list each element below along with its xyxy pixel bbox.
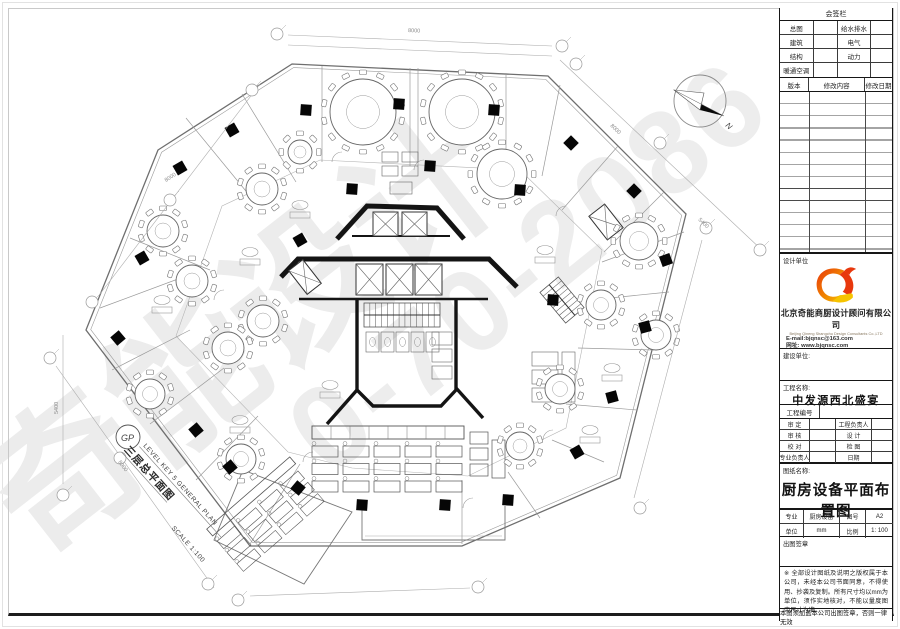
plan-shape (648, 260, 656, 267)
plan-shape (138, 220, 144, 228)
plan-shape (532, 352, 558, 366)
plan-shape (160, 252, 167, 257)
project-name-section: 工程名称: 中发源西北盛宴 (780, 381, 892, 405)
plan-shape (167, 270, 173, 278)
plan-shape (280, 178, 286, 186)
plan-shape (566, 404, 637, 410)
plan-shape (482, 143, 490, 150)
dining-table (536, 365, 584, 413)
plan-shape (498, 117, 504, 125)
plan-shape (237, 549, 261, 572)
seal-label: 出图签章 (780, 537, 892, 548)
plan-shape (258, 530, 282, 553)
plan-shape (636, 265, 643, 270)
plan-shape (258, 448, 264, 456)
plan-shape (260, 296, 267, 301)
plan-shape (217, 462, 223, 470)
plan-shape (237, 178, 243, 186)
personnel-label: 设 计 (836, 430, 872, 441)
plan-shape (618, 294, 624, 302)
plan-shape (259, 210, 266, 215)
plan-shape (526, 154, 533, 162)
plan-shape (436, 459, 440, 463)
plan-shape (504, 425, 512, 433)
company-logo-icon (780, 263, 892, 307)
column-marker (605, 390, 618, 403)
dim-label: 5400 (54, 402, 60, 414)
plan-shape (648, 260, 656, 267)
plan-shape (569, 368, 577, 376)
plan-shape (557, 409, 564, 414)
plan-shape (362, 506, 505, 540)
build-unit-label: 建设单位: (780, 349, 892, 360)
plan-shape (489, 133, 497, 141)
signature-label: 给水排水 (838, 21, 870, 35)
plan-shape (189, 256, 196, 261)
plan-shape (557, 409, 564, 414)
plan-shape (259, 164, 266, 169)
plan-shape (248, 519, 272, 542)
plan-shape (632, 324, 638, 332)
plan-shape (598, 281, 605, 286)
plan-shape (499, 140, 506, 145)
plan-shape (283, 135, 291, 143)
plan-shape (436, 446, 462, 457)
plan-shape (276, 522, 281, 527)
column-marker (514, 184, 526, 196)
plan-shape (135, 379, 165, 409)
plan-shape (297, 169, 304, 174)
plan-shape (260, 296, 267, 301)
plan-shape (297, 169, 304, 174)
plan-shape (244, 167, 252, 175)
signature-value (814, 63, 839, 77)
plan-shape (582, 426, 598, 435)
plan-shape (238, 435, 245, 440)
plan-shape (468, 171, 473, 178)
plan-shape (499, 204, 506, 209)
plan-shape (238, 508, 262, 531)
plan-shape (237, 192, 243, 200)
plan-shape (342, 73, 350, 80)
column-marker (300, 104, 312, 116)
signature-label: 动力 (838, 49, 870, 63)
signature-label: 总图 (780, 21, 814, 35)
plan-shape (528, 425, 536, 433)
personnel-label: 专业负责人 (780, 452, 810, 463)
signature-label: 暖通空调 (780, 63, 814, 77)
plan-shape (580, 437, 600, 443)
plan-shape (577, 378, 583, 386)
personnel-value (872, 441, 893, 452)
plan-shape (176, 265, 208, 297)
spec-label: 比例 (840, 524, 866, 538)
plan-shape (247, 305, 279, 337)
plan-shape (557, 365, 564, 370)
seal-section: 出图签章 (780, 537, 892, 567)
plan-shape (514, 143, 522, 150)
plan-shape (436, 481, 462, 492)
plan-scale: SCALE 1:100 (170, 525, 206, 564)
plan-shape (497, 436, 503, 444)
plan-shape (281, 25, 286, 30)
plan-shape (639, 314, 647, 322)
plan-shape (283, 135, 291, 143)
plan-shape (360, 70, 367, 75)
plan-shape (636, 213, 643, 218)
plan-shape (610, 284, 618, 292)
plan-shape (189, 302, 196, 307)
personnel-value (810, 452, 836, 463)
plan-shape (634, 240, 702, 498)
plan-shape (174, 259, 182, 267)
plan-shape (258, 462, 264, 470)
plan-shape (504, 425, 512, 433)
plan-shape (328, 133, 336, 141)
signature-label: 建筑 (780, 35, 814, 49)
plan-shape (545, 374, 575, 404)
revision-col: 版本 (780, 78, 809, 91)
plan-shape (632, 324, 638, 332)
plan-shape (250, 473, 258, 481)
plan-shape (147, 414, 154, 419)
plan-shape (328, 83, 336, 91)
plan-shape (288, 45, 552, 56)
plan-shape (598, 281, 605, 286)
plan-shape (470, 448, 488, 460)
plan-shape (514, 143, 522, 150)
column-marker (393, 98, 405, 110)
personnel-value (810, 441, 836, 452)
column-marker (224, 122, 239, 137)
plan-shape (489, 83, 497, 91)
dim-label: 8000 (164, 172, 178, 184)
company-name-cn: 北京奇能商厨设计顾问有限公司 (780, 307, 892, 331)
plan-shape (279, 512, 303, 535)
signature-label: 结构 (780, 49, 814, 63)
title-block: 会签栏 总图 给水排水 建筑 电气 结构 动力 暖通空调 版本 修改内容 修改日… (779, 8, 893, 621)
plan-shape (580, 55, 585, 60)
plan-shape (405, 477, 409, 481)
spec-label: 单位 (780, 524, 804, 538)
spec-label: 专业 (780, 510, 804, 524)
plan-shape (242, 591, 247, 596)
plan-shape (436, 442, 440, 446)
signature-label (838, 63, 870, 77)
plan-shape (536, 392, 542, 400)
plan-shape (356, 264, 383, 295)
plan-shape (459, 150, 466, 155)
plan-shape (470, 432, 488, 444)
spec-value: mm (804, 524, 840, 538)
plan-shape (532, 171, 537, 178)
plan-shape (244, 204, 252, 212)
revision-col: 修改日期 (865, 78, 892, 91)
plan-shape (374, 481, 400, 492)
plan-shape (470, 464, 488, 476)
plan-shape (536, 392, 542, 400)
plan-shape (497, 436, 503, 444)
plan-shape (528, 459, 536, 467)
plan-shape (214, 470, 352, 584)
plan-shape (236, 518, 241, 523)
plan-shape (584, 319, 592, 327)
plan-shape (543, 403, 551, 411)
signature-table: 会签栏 总图 给水排水 建筑 电气 结构 动力 暖通空调 版本 修改内容 修改日… (780, 8, 892, 253)
plan-shape (138, 234, 144, 242)
plan-shape (405, 459, 409, 463)
plan-shape (532, 171, 537, 178)
plan-shape (586, 290, 616, 320)
plan-shape (537, 436, 543, 444)
plan-shape (632, 338, 638, 346)
personnel-label: 日期 (836, 452, 872, 463)
plan-shape (259, 164, 266, 169)
plan-shape (402, 212, 427, 236)
signature-value (871, 35, 892, 49)
plan-shape (250, 438, 258, 446)
dim-label: 8000 (408, 28, 420, 34)
signature-value (814, 49, 839, 63)
plan-shape (328, 83, 336, 91)
plan-shape (636, 213, 643, 218)
plan-shape (147, 414, 154, 419)
plan-shape (360, 150, 367, 155)
personnel-value (872, 452, 893, 463)
plan-shape (653, 355, 660, 360)
signature-value (871, 49, 892, 63)
plan-shape (499, 204, 506, 209)
plan-shape (250, 588, 470, 596)
plan-shape (636, 265, 643, 270)
plan-shape (145, 209, 153, 217)
plan-shape (644, 499, 649, 504)
plan-shape (271, 167, 279, 175)
plan-shape (557, 365, 564, 370)
plan-shape (260, 342, 267, 347)
plan-shape (764, 241, 769, 246)
personnel-value (872, 430, 893, 441)
dining-table (138, 206, 188, 256)
plan-shape (710, 219, 715, 224)
plan-shape (618, 294, 624, 302)
project-no-value (820, 405, 892, 418)
plan-shape (174, 259, 182, 267)
plan-shape (390, 83, 398, 91)
plan-shape (288, 35, 552, 46)
signature-value (814, 35, 839, 49)
plan-shape (342, 73, 350, 80)
plan-shape (463, 498, 473, 508)
plan-shape (653, 311, 660, 316)
disclaimer-section: ※ 全部设计图纸及说明之版权属于本公司，未经本公司书面同意，不得使用、抄袭及复制… (780, 567, 892, 609)
project-no-row: 工程编号 (780, 405, 892, 419)
column-marker (547, 294, 559, 306)
plan-shape (482, 143, 490, 150)
plan-shape (255, 540, 260, 545)
plan-shape (237, 178, 243, 186)
plan-shape (639, 314, 647, 322)
plan-shape (360, 150, 367, 155)
plan-shape (459, 70, 466, 75)
dining-table (497, 423, 543, 469)
personnel-label: 审 核 (780, 430, 810, 441)
plan-shape (224, 473, 232, 481)
plan-shape (172, 246, 180, 254)
spec-value: 1: 100 (866, 524, 893, 538)
plan-shape (317, 149, 322, 156)
personnel-value (810, 419, 836, 430)
plan-shape (298, 504, 303, 509)
plan-shape (167, 270, 173, 278)
column-marker (134, 250, 149, 265)
plan-shape (536, 378, 542, 386)
revision-header: 版本 修改内容 修改日期 (780, 77, 892, 92)
revision-col: 修改内容 (809, 78, 865, 91)
personnel-label: 检 图 (836, 441, 872, 452)
plan-shape (543, 368, 551, 376)
plan-shape (598, 325, 605, 330)
plan-shape (632, 338, 638, 346)
plan-shape (212, 332, 244, 364)
plan-shape (225, 369, 232, 374)
plan-shape (543, 403, 551, 411)
plan-shape (482, 578, 487, 583)
plan-shape (489, 133, 497, 141)
plan-shape (475, 73, 483, 80)
plan-shape (138, 220, 144, 228)
spec-value: 厨房设备 (804, 510, 840, 524)
plan-shape (279, 149, 284, 156)
plan-shape (498, 117, 504, 125)
personnel-value (810, 430, 836, 441)
plan-shape (172, 209, 180, 217)
plan-shape (309, 135, 317, 143)
column-marker (356, 499, 368, 511)
plan-shape (312, 477, 316, 481)
plan-shape (475, 73, 483, 80)
plan-shape (517, 423, 524, 428)
plan-shape (610, 319, 618, 327)
plan-shape (224, 473, 232, 481)
plan-shape (225, 323, 232, 328)
column-marker (488, 104, 500, 116)
plan-shape (663, 238, 668, 245)
revision-rows-empty (780, 92, 892, 252)
personnel-label: 校 对 (780, 441, 810, 452)
plan-shape (309, 135, 317, 143)
plan-shape (225, 369, 232, 374)
plan-shape (181, 234, 187, 242)
plan-shape (181, 220, 187, 228)
plan-shape (257, 499, 262, 504)
plan-shape (517, 465, 524, 470)
project-name-label: 工程名称: (780, 381, 892, 392)
plan-shape (246, 173, 278, 205)
plan-shape (598, 325, 605, 330)
plan-shape (317, 149, 322, 156)
plan-shape (441, 73, 449, 80)
plan-shape (225, 323, 232, 328)
signature-title: 会签栏 (780, 8, 892, 21)
plan-shape (189, 256, 196, 261)
plan-shape (238, 479, 245, 484)
plan-shape (517, 465, 524, 470)
plan-shape (328, 133, 336, 141)
plan-shape (618, 308, 624, 316)
personnel-value (872, 419, 893, 430)
plan-shape (237, 192, 243, 200)
plan-shape (405, 481, 431, 492)
plan-shape (181, 220, 187, 228)
plan-shape (566, 37, 571, 42)
plan-shape (238, 479, 245, 484)
plan-shape (288, 140, 312, 164)
plan-shape (577, 378, 583, 386)
plan-shape (271, 167, 279, 175)
plan-shape (653, 355, 660, 360)
plan-shape (429, 79, 495, 145)
plan-shape (309, 161, 317, 169)
signature-value (871, 63, 892, 77)
plan-shape (260, 342, 267, 347)
column-marker (346, 183, 358, 195)
design-unit-section: 设计单位 北京奇能商厨设计顾问有限公司 Beijing Qineng Shang… (780, 253, 892, 349)
plan-shape (386, 264, 413, 295)
project-no-label: 工程编号 (780, 405, 820, 418)
plan-shape (536, 378, 542, 386)
plan-shape (537, 448, 543, 456)
column-marker (439, 499, 451, 511)
personnel-label: 审 定 (780, 419, 810, 430)
plan-shape (537, 448, 543, 456)
plan-shape (528, 425, 536, 433)
plan-shape (604, 364, 620, 373)
plan-shape (436, 464, 462, 475)
plan-shape (528, 459, 536, 467)
plan-shape (217, 526, 241, 549)
spec-label: 图号 (840, 510, 866, 524)
plan-shape (611, 238, 616, 245)
plan-shape (217, 462, 223, 470)
plan-shape (189, 302, 196, 307)
plan-shape (280, 178, 286, 186)
plan-shape (172, 246, 180, 254)
plan-shape (390, 83, 398, 91)
plan-shape (376, 73, 384, 80)
plan-shape (330, 79, 396, 145)
signature-label: 电气 (838, 35, 870, 49)
plan-shape (212, 575, 217, 580)
plan-shape (259, 210, 266, 215)
plan-shape (279, 149, 284, 156)
plan-shape (610, 319, 618, 327)
plan-shape (147, 215, 179, 247)
floor-plan-drawing: 奇能设计 0-70-2086 N GP LEVEL KEY 5 GENERAL … (0, 0, 900, 629)
plan-shape (250, 473, 258, 481)
plan-shape (537, 436, 543, 444)
drawing-sheet: 奇能设计 0-70-2086 N GP LEVEL KEY 5 GENERAL … (0, 0, 900, 629)
plan-shape (138, 234, 144, 242)
plan-shape (665, 314, 673, 322)
plan-shape (238, 435, 245, 440)
spec-value: A2 (866, 510, 893, 524)
plan-shape (506, 432, 534, 460)
plan-shape (459, 70, 466, 75)
plan-shape (618, 308, 624, 316)
plan-shape (258, 462, 264, 470)
signature-value (871, 21, 892, 35)
